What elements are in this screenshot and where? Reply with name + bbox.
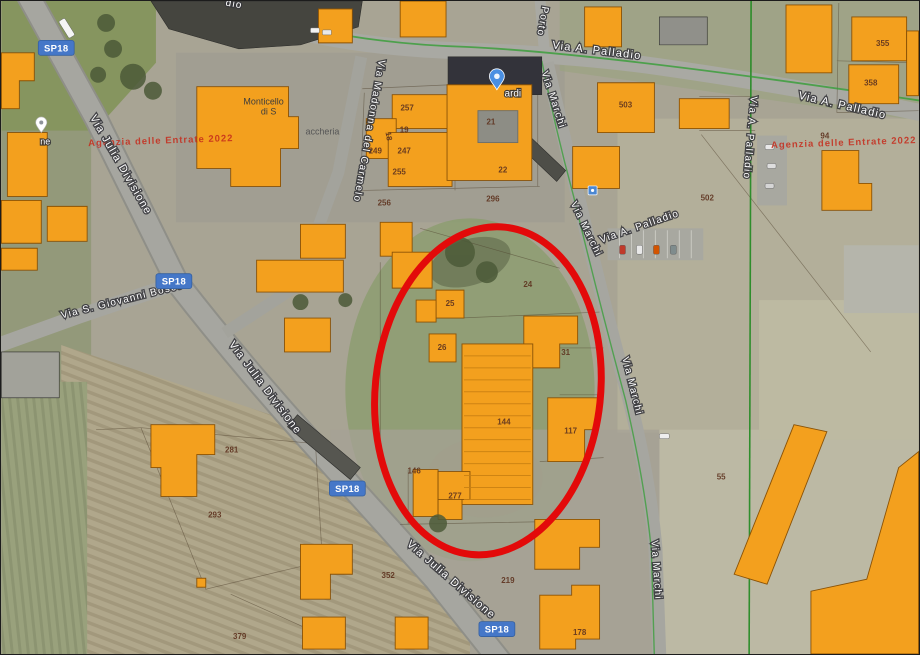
building-footprint — [300, 224, 345, 258]
terrain-patch — [759, 300, 919, 440]
parcel-number: 255 — [393, 167, 407, 176]
parcel-number: 256 — [378, 198, 392, 207]
vegetation — [120, 64, 146, 90]
parcel-number: 281 — [225, 446, 239, 455]
parcel-number: 117 — [564, 427, 577, 436]
parcel-number: 293 — [208, 510, 222, 519]
satellite-map[interactable]: Agenzia delle Entrate 2022Agenzia delle … — [1, 1, 919, 654]
parcel-number: 502 — [701, 193, 715, 202]
vegetation — [97, 14, 115, 32]
map-viewport[interactable]: Agenzia delle Entrate 2022Agenzia delle … — [0, 0, 920, 655]
building-footprint — [197, 578, 206, 587]
vehicle — [620, 245, 626, 254]
parcel-number: 144 — [497, 418, 511, 427]
building-footprint — [478, 111, 518, 143]
parcel-number: 219 — [501, 576, 515, 585]
parcel-number: 24 — [523, 280, 532, 289]
parcel-number: 355 — [876, 39, 890, 48]
parcel-number: 257 — [401, 104, 415, 113]
vegetation — [429, 514, 447, 532]
vegetation — [476, 261, 498, 283]
parcel-number: 94 — [820, 132, 829, 141]
route-badge-label: SP18 — [44, 43, 68, 54]
building-footprint — [679, 99, 729, 129]
parcel-number: 22 — [498, 165, 507, 174]
parcel-number: 277 — [448, 491, 462, 500]
pin-dot — [494, 73, 500, 79]
parcel-number: 55 — [717, 473, 726, 482]
vegetation — [90, 67, 106, 83]
parcel-number: 146 — [407, 467, 421, 476]
poi-label: ne — [40, 137, 50, 147]
parcel-number: 503 — [619, 101, 633, 110]
route-badge-sp18: SP18 — [329, 481, 365, 496]
route-badge-label: SP18 — [335, 484, 359, 495]
parcel-number: 358 — [864, 79, 878, 88]
building-footprint — [907, 31, 919, 96]
building-footprint — [302, 617, 345, 649]
vegetation — [104, 40, 122, 58]
vegetation — [338, 293, 352, 307]
parcel-number: 19 — [400, 126, 409, 135]
route-badge-sp18: SP18 — [156, 274, 192, 289]
vehicle — [659, 434, 669, 439]
parcel-number: 247 — [398, 147, 412, 156]
vehicle — [653, 245, 659, 254]
building-footprint — [380, 222, 412, 256]
vehicle — [765, 183, 774, 188]
parcel-number: 178 — [573, 628, 587, 637]
vehicle — [767, 164, 776, 169]
building-footprint — [1, 248, 37, 270]
parcel-number: 26 — [438, 343, 447, 352]
roof — [659, 17, 707, 45]
poi-label: ardi — [505, 89, 522, 100]
parcel-number: 21 — [486, 118, 495, 127]
terrain-patch — [844, 245, 919, 313]
parcel-number: 296 — [486, 194, 500, 203]
building-footprint — [400, 1, 446, 37]
building-footprint — [1, 200, 41, 243]
building-footprint — [585, 7, 622, 47]
parcel-number: 352 — [382, 571, 396, 580]
parcel-number: 31 — [561, 348, 570, 357]
vehicle — [322, 30, 331, 35]
building-footprint — [540, 585, 600, 649]
poi-label: accheria — [305, 127, 339, 137]
building-footprint — [388, 133, 452, 187]
pin-dot — [39, 121, 43, 125]
route-badge-label: SP18 — [162, 277, 186, 288]
vegetation — [144, 82, 162, 100]
vehicle — [670, 245, 676, 254]
building-footprint — [416, 300, 436, 322]
poi-label: Monticello — [243, 97, 283, 107]
building-footprint — [47, 206, 87, 241]
vehicle — [636, 245, 642, 254]
transit-stop-icon — [588, 186, 597, 195]
route-badge-sp18: SP18 — [38, 40, 74, 55]
building-footprint — [285, 318, 331, 352]
building-footprint — [395, 617, 428, 649]
vegetation — [293, 294, 309, 310]
square-icon-dot — [591, 189, 594, 192]
building-footprint — [318, 9, 352, 43]
route-badge-label: SP18 — [485, 625, 509, 636]
roof — [1, 352, 59, 398]
parcel-number: 249 — [369, 147, 383, 156]
vehicle — [310, 28, 319, 33]
building-footprint — [413, 470, 438, 517]
parcel-number: 25 — [446, 299, 455, 308]
parcel-number: 379 — [233, 632, 247, 641]
building-footprint — [257, 260, 344, 292]
building-footprint — [573, 147, 620, 189]
poi-label: di S — [261, 107, 276, 117]
building-footprint — [786, 5, 832, 73]
route-badge-sp18: SP18 — [479, 622, 515, 637]
terrain-patch — [1, 382, 87, 654]
